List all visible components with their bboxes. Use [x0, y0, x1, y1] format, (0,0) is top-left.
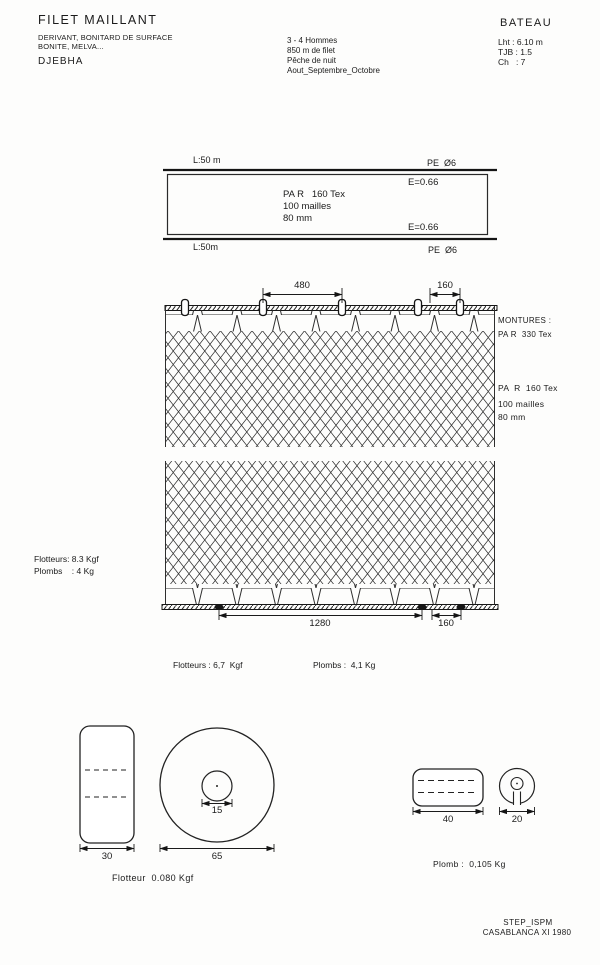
ballast-total-label: Plombs : 4,1 Kg [313, 661, 375, 670]
boat-tonnage: TJB : 1.5 [498, 48, 532, 57]
buoyancy-total-label: Flotteurs : 6,7 Kgf [173, 661, 242, 670]
montures-label: MONTURES : [498, 317, 551, 326]
net-drawing [0, 0, 600, 965]
float-side-view [80, 726, 134, 843]
dim-label-480: 480 [294, 281, 310, 291]
dim-label-float-core: 15 [212, 806, 223, 816]
dim-label-float-diameter: 65 [212, 852, 223, 862]
schematic-rope-top: PE Ø6 [427, 159, 456, 169]
dim-label-float-width: 30 [102, 852, 113, 862]
dim-label-160-bottom: 160 [438, 619, 454, 629]
montures-value: PA R 330 Tex [498, 331, 552, 340]
sinker-weight-label: Plomb : 0,105 Kg [433, 860, 506, 869]
lower-net-panel [162, 461, 498, 620]
page-title: FILET MAILLANT [38, 14, 157, 28]
fishing-mode-info: Pêche de nuit [287, 57, 336, 66]
crew-info: 3 - 4 Hommes [287, 37, 337, 46]
buoyancy-left-label: Flotteurs: 8.3 Kgf [34, 555, 99, 564]
dim-label-sinker-diameter: 20 [512, 815, 523, 825]
float-icon [415, 300, 422, 316]
schematic-length-top: L:50 m [193, 156, 221, 166]
upper-net-panel [165, 288, 497, 447]
schematic-hanging-ratio-top: E=0.66 [408, 178, 438, 188]
schematic-mesh-size: 80 mm [283, 214, 312, 224]
footer-place: CASABLANCA XI 1980 [483, 929, 572, 938]
footrope [162, 605, 498, 610]
schematic-hanging-ratio-bottom: E=0.66 [408, 223, 438, 233]
float-weight-label: Flotteur 0.080 Kgf [112, 874, 194, 884]
sinker-icon [418, 604, 427, 610]
mesh-upper [165, 331, 495, 447]
panel-twine: PA R 160 Tex [498, 384, 558, 393]
float-detail-drawing [80, 726, 274, 852]
hanging-bottom [165, 584, 495, 605]
sinker-icon [215, 604, 224, 610]
headrope [165, 306, 497, 311]
sinker-icon [457, 604, 466, 610]
schematic-length-bottom: L:50m [193, 243, 218, 253]
boat-title: BATEAU [500, 17, 552, 29]
port-name: DJEBHA [38, 56, 83, 67]
sinker-side-view [413, 769, 483, 806]
dim-label-sinker-width: 40 [443, 815, 454, 825]
footer-org: STEP_ISPM [503, 919, 552, 928]
schematic-depth: 100 mailles [283, 202, 331, 212]
net-length-info: 850 m de filet [287, 47, 335, 56]
dim-label-1280: 1280 [309, 619, 330, 629]
mesh-lower [165, 461, 495, 584]
ballast-left-label: Plombs : 4 Kg [34, 567, 94, 576]
technical-drawing-page: FILET MAILLANT DERIVANT, BONITARD DE SUR… [0, 0, 600, 965]
dim-label-160-top: 160 [437, 281, 453, 291]
season-info: Aout_Septembre_Octobre [287, 67, 380, 76]
boat-power: Ch : 7 [498, 58, 525, 67]
subtitle-line1: DERIVANT, BONITARD DE SURFACE [38, 34, 173, 42]
boat-length: Lht : 6.10 m [498, 38, 543, 47]
schematic-rope-bottom: PE Ø6 [428, 246, 457, 256]
schematic-twine: PA R 160 Tex [283, 190, 345, 200]
panel-depth: 100 mailles [498, 400, 544, 409]
panel-mesh-size: 80 mm [498, 413, 525, 422]
hanging-top [165, 311, 495, 332]
float-icon [182, 300, 189, 316]
subtitle-line2: BONITE, MELVA... [38, 43, 104, 51]
sinker-detail-drawing [413, 769, 535, 816]
